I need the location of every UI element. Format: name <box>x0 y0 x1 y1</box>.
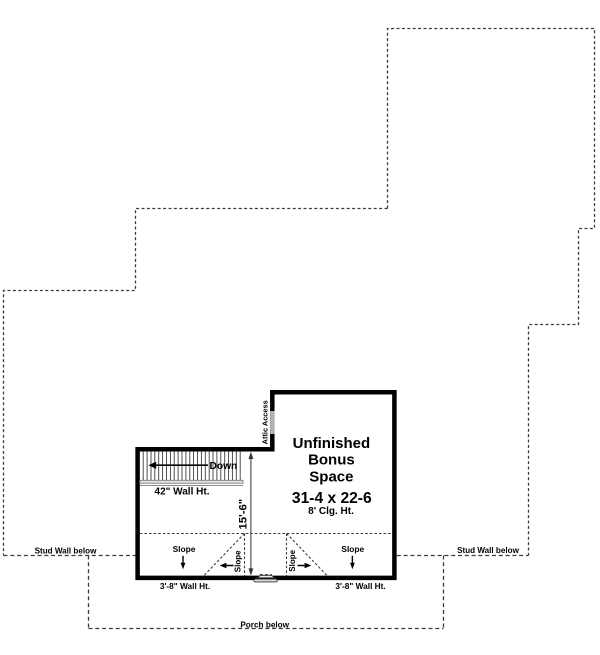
svg-text:Stud Wall below: Stud Wall below <box>35 547 97 556</box>
svg-text:Slope: Slope <box>233 550 242 572</box>
svg-text:Slope: Slope <box>288 549 297 571</box>
svg-text:42" Wall Ht.: 42" Wall Ht. <box>155 487 210 498</box>
svg-text:Stud Wall below: Stud Wall below <box>457 546 519 555</box>
svg-text:Bonus: Bonus <box>308 452 355 469</box>
svg-text:Unfinished: Unfinished <box>293 435 371 452</box>
svg-text:15'-6": 15'-6" <box>237 499 249 530</box>
svg-text:31-4 x 22-6: 31-4 x 22-6 <box>292 490 372 507</box>
svg-text:3'-8" Wall Ht.: 3'-8" Wall Ht. <box>160 581 210 591</box>
svg-text:Slope: Slope <box>173 544 196 554</box>
svg-text:Porch below: Porch below <box>240 621 289 630</box>
svg-text:Attic Access: Attic Access <box>261 400 270 444</box>
svg-text:Space: Space <box>309 468 353 485</box>
svg-text:Slope: Slope <box>341 544 364 554</box>
svg-text:8' Clg. Ht.: 8' Clg. Ht. <box>308 506 354 517</box>
svg-text:Down: Down <box>210 461 238 472</box>
svg-text:3'-8" Wall Ht.: 3'-8" Wall Ht. <box>335 581 385 591</box>
